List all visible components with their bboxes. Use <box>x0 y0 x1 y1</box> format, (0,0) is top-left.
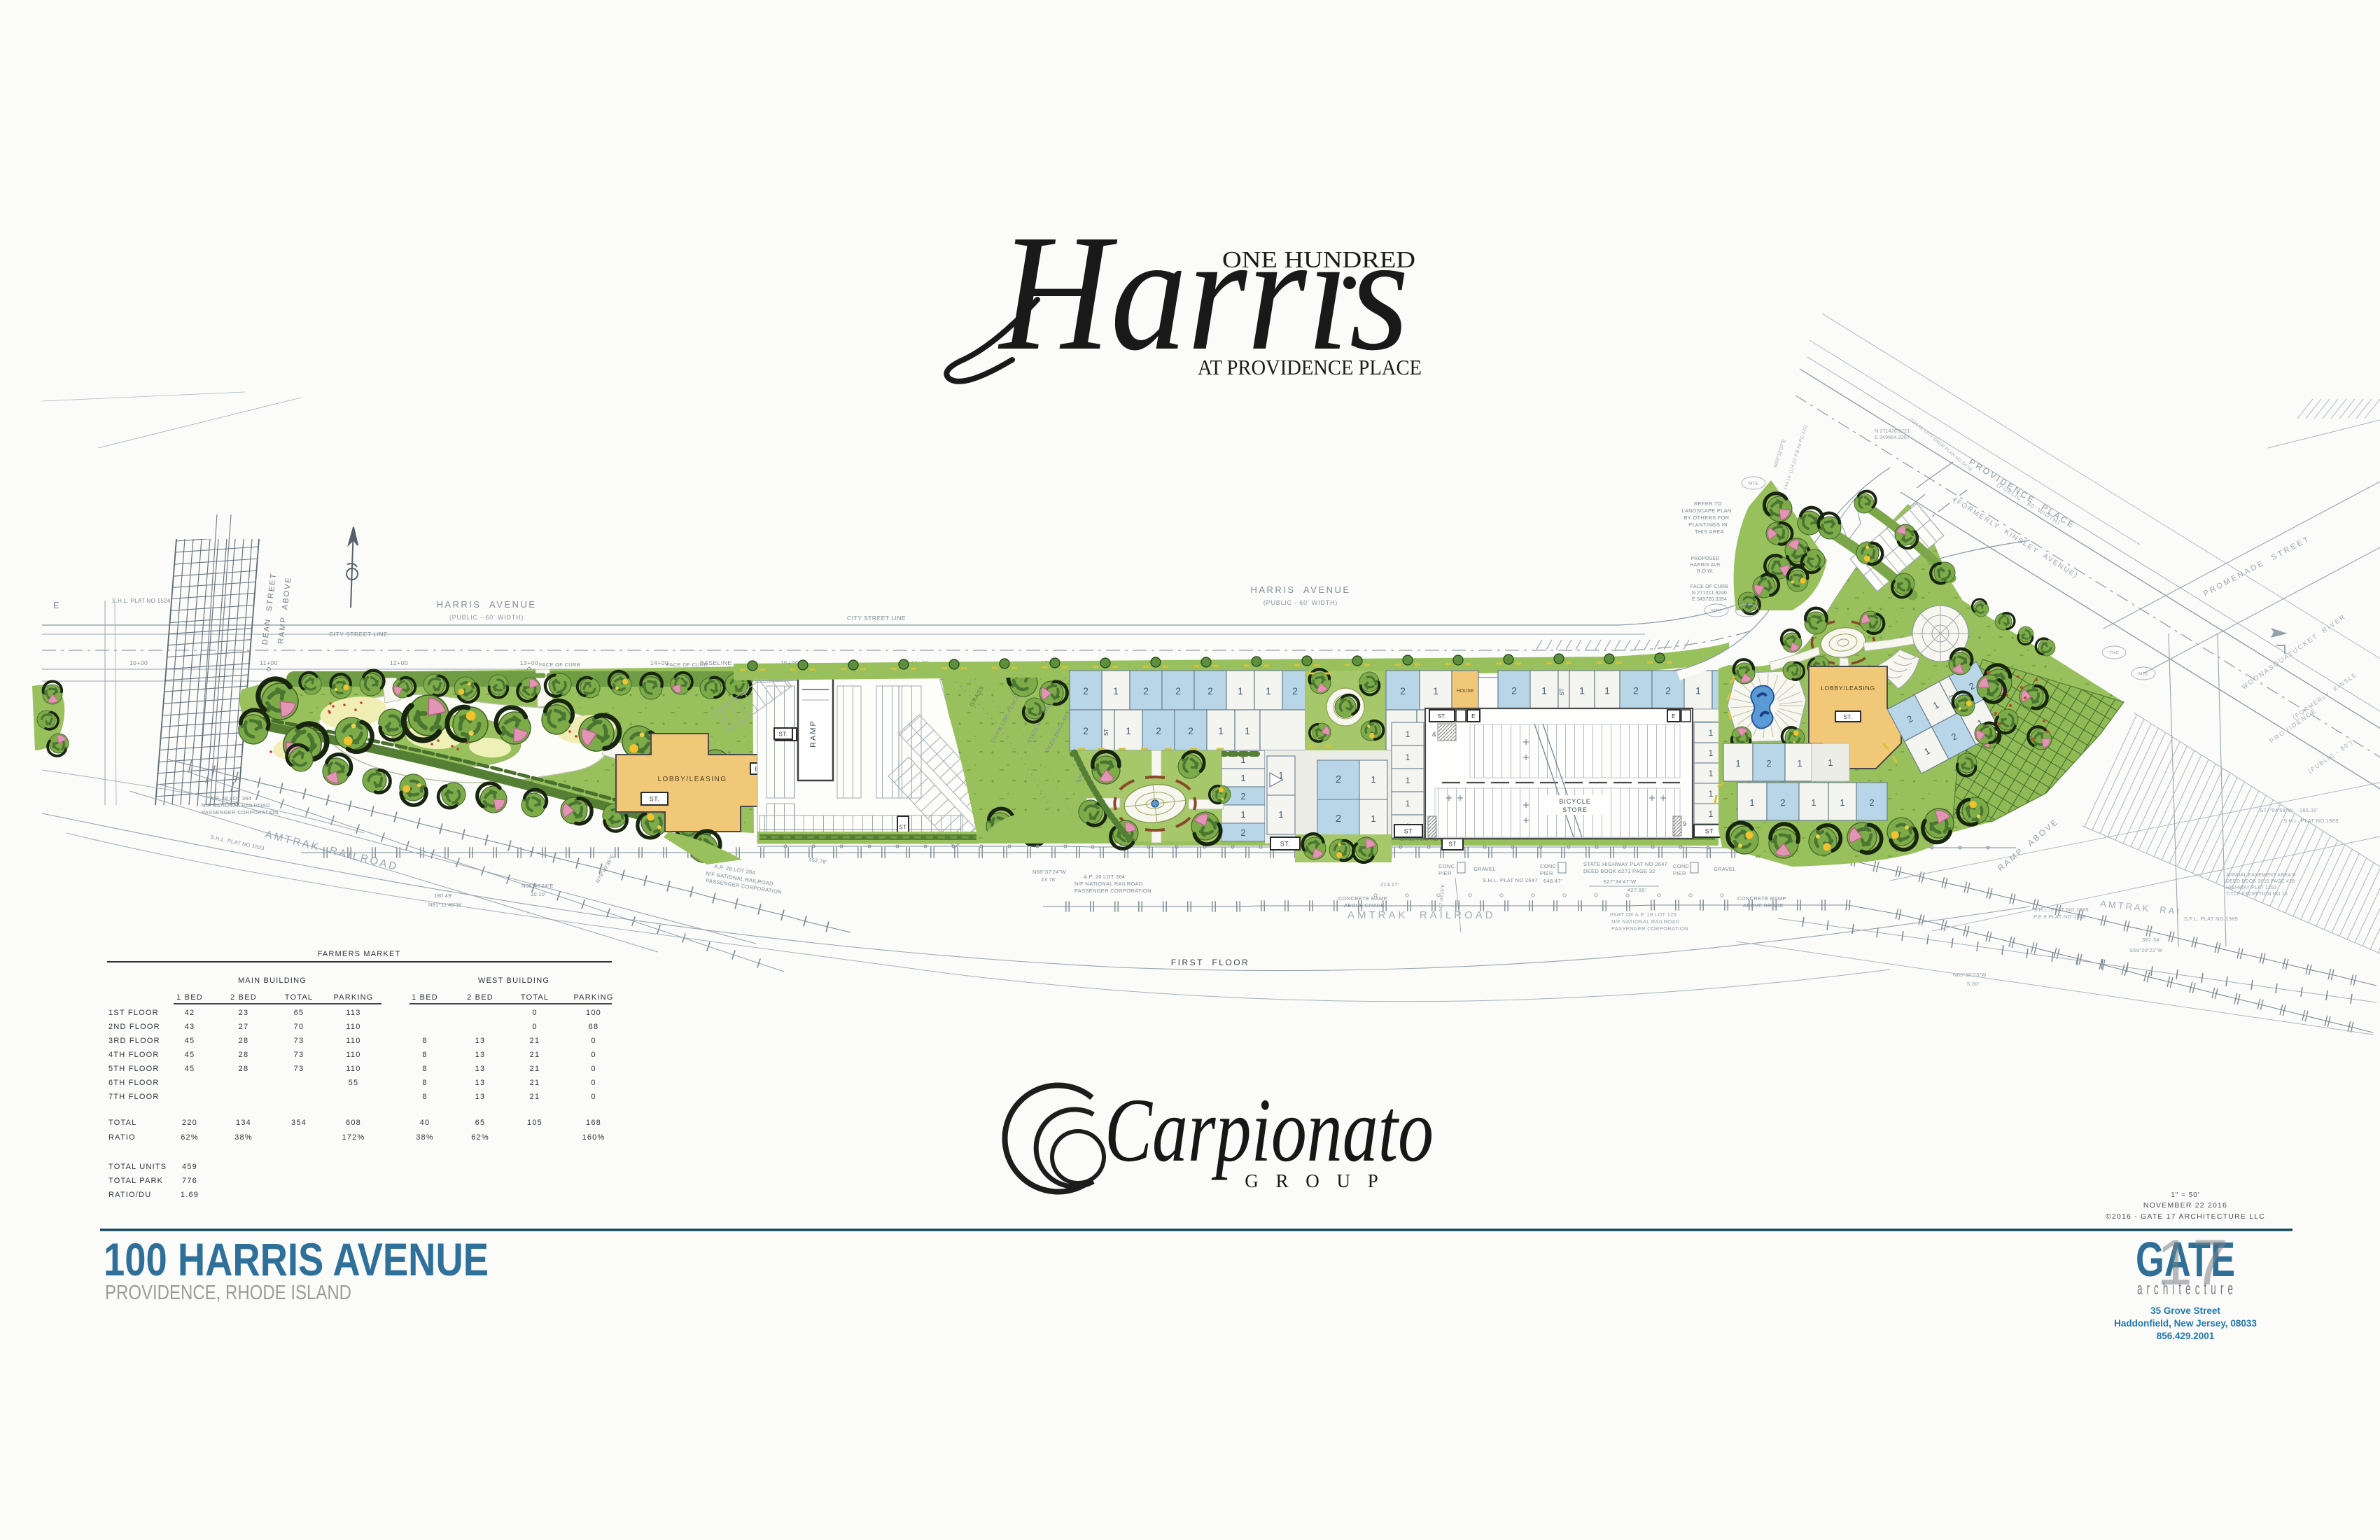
svg-text:2: 2 <box>1766 758 1771 769</box>
svg-text:MTE: MTE <box>1711 609 1722 614</box>
svg-text:STATE HIGHWAY PLAT NO 2647: STATE HIGHWAY PLAT NO 2647 <box>1583 861 1667 867</box>
svg-text:R.O.W.: R.O.W. <box>1697 569 1714 574</box>
svg-text:110: 110 <box>346 1037 360 1045</box>
svg-text:S27°34'47"W: S27°34'47"W <box>1603 878 1637 885</box>
svg-text:2: 2 <box>1633 685 1639 696</box>
svg-text:1 BED: 1 BED <box>412 993 438 1002</box>
svg-text:0: 0 <box>591 1051 596 1059</box>
svg-text:HOUSE: HOUSE <box>1457 689 1474 694</box>
svg-text:1: 1 <box>1709 728 1714 738</box>
svg-text:3RD FLOOR: 3RD FLOOR <box>108 1037 160 1045</box>
svg-text:1: 1 <box>1218 725 1224 736</box>
svg-text:8: 8 <box>422 1065 427 1073</box>
svg-text:LANDSCAPE PLAN: LANDSCAPE PLAN <box>1681 507 1731 514</box>
svg-text:10+00: 10+00 <box>129 659 148 666</box>
svg-text:1: 1 <box>1126 725 1131 736</box>
svg-text:VGC: VGC <box>1742 609 1753 614</box>
svg-text:0: 0 <box>532 1009 537 1017</box>
svg-text:1: 1 <box>1709 789 1714 799</box>
svg-text:8: 8 <box>422 1079 427 1087</box>
svg-text:1: 1 <box>1811 797 1816 808</box>
svg-text:E: E <box>1471 713 1476 720</box>
svg-text:7TH FLOOR: 7TH FLOOR <box>108 1093 160 1101</box>
svg-text:CITY STREET LINE: CITY STREET LINE <box>329 631 388 638</box>
svg-text:TITLE EXCEPTION NO 16: TITLE EXCEPTION NO 16 <box>2226 892 2288 897</box>
svg-text:23: 23 <box>239 1009 249 1017</box>
svg-text:N/F NATIONAL RAILROAD: N/F NATIONAL RAILROAD <box>1074 881 1143 887</box>
svg-text:73: 73 <box>294 1051 304 1059</box>
svg-text:(FORMERLY KINSLE: (FORMERLY KINSLE <box>2291 671 2358 721</box>
svg-text:THC: THC <box>2109 651 2119 656</box>
svg-text:8: 8 <box>422 1037 427 1045</box>
svg-text:PASSENGER CORPORATION: PASSENGER CORPORATION <box>1074 888 1151 894</box>
svg-text:1ST FLOOR: 1ST FLOOR <box>108 1009 159 1017</box>
svg-text:©2016 - GATE 17 ARCHITECTURE L: ©2016 - GATE 17 ARCHITECTURE LLC <box>2106 1212 2265 1221</box>
svg-text:REFER TO: REFER TO <box>1694 500 1722 507</box>
svg-text:65: 65 <box>475 1119 486 1127</box>
svg-text:180.49': 180.49' <box>434 892 453 899</box>
svg-text:55: 55 <box>349 1079 359 1087</box>
svg-text:5TH FLOOR: 5TH FLOOR <box>108 1065 160 1073</box>
svg-text:PARKING: PARKING <box>333 993 373 1002</box>
svg-text:NOVEMBER 22 2016: NOVEMBER 22 2016 <box>2143 1201 2227 1210</box>
svg-text:1: 1 <box>1709 748 1714 758</box>
svg-text:1: 1 <box>1840 797 1844 808</box>
svg-text:2: 2 <box>1511 685 1517 696</box>
svg-text:1: 1 <box>1371 813 1375 824</box>
svg-text:S.H.L. PLAT NO 2647: S.H.L. PLAT NO 2647 <box>1483 877 1538 883</box>
svg-text:13: 13 <box>475 1051 486 1059</box>
svg-text:1: 1 <box>1113 685 1119 696</box>
svg-text:S.H.L. PLAT NO 1524: S.H.L. PLAT NO 1524 <box>112 598 171 604</box>
svg-text:45: 45 <box>185 1037 195 1045</box>
svg-text:HIGHWAY PLAT 1253: HIGHWAY PLAT 1253 <box>2226 885 2276 890</box>
svg-text:1: 1 <box>1695 685 1701 696</box>
svg-text:ST.: ST. <box>650 796 660 803</box>
svg-text:LOBBY/LEASING: LOBBY/LEASING <box>1821 685 1875 692</box>
svg-text:8: 8 <box>422 1093 427 1101</box>
svg-text:CONC: CONC <box>1540 863 1557 869</box>
svg-text:62%: 62% <box>181 1133 199 1142</box>
svg-text:ST: ST <box>1103 729 1109 736</box>
svg-text:ST: ST <box>1448 841 1456 848</box>
svg-text:ST: ST <box>1559 688 1565 695</box>
svg-text:CITY STREET LINE: CITY STREET LINE <box>847 615 906 622</box>
svg-text:42: 42 <box>185 1009 195 1017</box>
svg-text:2: 2 <box>1869 797 1874 808</box>
svg-text:CONC: CONC <box>1673 863 1690 869</box>
svg-text:(PUBLIC - 80'): (PUBLIC - 80') <box>2306 738 2354 775</box>
svg-text:S.H.L. PLAT NO 1989: S.H.L. PLAT NO 1989 <box>2033 906 2089 913</box>
svg-text:1: 1 <box>1797 758 1802 769</box>
svg-text:TOTAL UNITS: TOTAL UNITS <box>108 1163 167 1171</box>
svg-text:(144.01 CITY ENGR PLAN NO 5474: (144.01 CITY ENGR PLAN NO 5474) <box>1909 417 1973 472</box>
svg-text:2 BED: 2 BED <box>467 993 493 1002</box>
svg-text:2: 2 <box>1083 685 1088 696</box>
svg-text:105: 105 <box>527 1119 542 1127</box>
svg-text:PASSENGER CORPORATION: PASSENGER CORPORATION <box>202 809 279 815</box>
svg-text:1: 1 <box>1278 809 1283 820</box>
svg-text:ST.: ST. <box>1280 841 1291 848</box>
svg-text:10.10': 10.10' <box>531 891 546 897</box>
svg-text:GRAVEL: GRAVEL <box>1714 866 1736 872</box>
svg-text:648.47': 648.47' <box>1543 878 1562 884</box>
svg-text:1" = 50': 1" = 50' <box>2171 1191 2200 1199</box>
svg-text:a r c h i t e c t u r e: a r c h i t e c t u r e <box>2137 1280 2234 1298</box>
svg-text:21: 21 <box>530 1079 540 1087</box>
svg-text:(FORMERLY KINSLEY AVENUE): (FORMERLY KINSLEY AVENUE) <box>1952 496 2079 580</box>
svg-text:2: 2 <box>1665 685 1671 696</box>
svg-text:73: 73 <box>294 1065 304 1073</box>
svg-text:21: 21 <box>530 1037 540 1045</box>
svg-text:35 Grove Street: 35 Grove Street <box>2150 1305 2220 1316</box>
svg-text:TOTAL PARK: TOTAL PARK <box>108 1177 163 1185</box>
svg-text:2: 2 <box>1780 797 1785 808</box>
svg-text:TOTAL: TOTAL <box>285 993 313 1002</box>
svg-text:(PUBLIC - 60' WIDTH): (PUBLIC - 60' WIDTH) <box>449 614 524 621</box>
svg-text:N 271211.9240: N 271211.9240 <box>1692 591 1727 596</box>
svg-text:LOBBY/LEASING: LOBBY/LEASING <box>658 776 727 783</box>
svg-text:27: 27 <box>239 1023 249 1031</box>
svg-text:220: 220 <box>182 1119 197 1127</box>
svg-text:776: 776 <box>182 1177 197 1185</box>
svg-text:2: 2 <box>1188 725 1193 736</box>
svg-text:N79°40'36"E: N79°40'36"E <box>594 853 616 884</box>
svg-text:RATIO/DU: RATIO/DU <box>108 1191 151 1199</box>
svg-text:1: 1 <box>1406 752 1410 762</box>
svg-text:9: 9 <box>1683 820 1686 827</box>
svg-text:AMTRAK RAI: AMTRAK RAI <box>2100 898 2182 917</box>
svg-text:452.78': 452.78' <box>808 856 828 865</box>
svg-text:PASSENGER CORPORATION: PASSENGER CORPORATION <box>1611 925 1688 932</box>
svg-text:213.17': 213.17' <box>1380 881 1399 888</box>
svg-text:1: 1 <box>1604 685 1610 696</box>
svg-text:13+00: 13+00 <box>520 659 538 666</box>
svg-text:G R O U P: G R O U P <box>1245 1170 1385 1191</box>
svg-text:2ND FLOOR: 2ND FLOOR <box>108 1023 160 1031</box>
svg-text:ST: ST <box>1404 828 1413 835</box>
svg-text:MTE: MTE <box>1749 482 1759 486</box>
svg-text:HARRIS AVENUE: HARRIS AVENUE <box>1250 584 1350 595</box>
svg-text:PROVIDENCE: PROVIDENCE <box>2268 707 2318 745</box>
svg-text:S.H.L. PLAT NO 1989: S.H.L. PLAT NO 1989 <box>2283 818 2339 824</box>
svg-text:62%: 62% <box>471 1133 489 1142</box>
svg-text:856.429.2001: 856.429.2001 <box>2157 1331 2215 1341</box>
svg-text:ST.: ST. <box>778 731 787 738</box>
svg-text:ST: ST <box>1705 828 1714 835</box>
svg-text:608: 608 <box>346 1119 361 1127</box>
svg-text:43: 43 <box>185 1023 195 1031</box>
svg-text:110: 110 <box>346 1065 360 1073</box>
svg-text:45: 45 <box>185 1051 195 1059</box>
svg-text:11+00: 11+00 <box>260 659 278 666</box>
svg-text:38%: 38% <box>416 1133 434 1142</box>
svg-text:70: 70 <box>294 1023 304 1031</box>
svg-text:N07°06'25"E: N07°06'25"E <box>1438 883 1445 911</box>
svg-text:40: 40 <box>420 1119 430 1127</box>
svg-text:134: 134 <box>236 1119 251 1127</box>
svg-text:100: 100 <box>586 1009 601 1017</box>
svg-text:N/F NATIONAL RAILROAD: N/F NATIONAL RAILROAD <box>1611 918 1680 925</box>
svg-text:FACE OF CURB: FACE OF CURB <box>666 661 708 668</box>
svg-text:PLANTINGS IN: PLANTINGS IN <box>1688 521 1728 528</box>
svg-text:5.00': 5.00' <box>1967 981 1980 987</box>
svg-text:28: 28 <box>239 1051 249 1059</box>
svg-text:PIER: PIER <box>1673 870 1686 876</box>
svg-text:1: 1 <box>1371 774 1375 785</box>
svg-text:Carpionato: Carpionato <box>1105 1080 1434 1181</box>
svg-text:6TH FLOOR: 6TH FLOOR <box>108 1079 160 1087</box>
svg-text:DEED BOOK 6271 PAGE 32: DEED BOOK 6271 PAGE 32 <box>1583 868 1655 874</box>
svg-text:ST: ST <box>899 825 906 831</box>
svg-text:168: 168 <box>586 1119 601 1127</box>
svg-text:WEST BUILDING: WEST BUILDING <box>478 976 549 985</box>
svg-text:&: & <box>1432 731 1436 738</box>
svg-text:N05°30'23"W: N05°30'23"W <box>1953 972 1987 978</box>
svg-text:RAMP ABOVE: RAMP ABOVE <box>1996 816 2061 873</box>
svg-text:FACE OF CURB: FACE OF CURB <box>539 661 580 668</box>
svg-text:RATIO: RATIO <box>108 1133 136 1142</box>
svg-text:ST.: ST. <box>1437 713 1446 720</box>
svg-text:N 271426.0721: N 271426.0721 <box>1875 429 1910 434</box>
svg-text:2: 2 <box>1292 685 1298 696</box>
svg-text:2: 2 <box>1240 827 1245 838</box>
svg-text:2: 2 <box>1240 791 1245 801</box>
svg-text:110: 110 <box>346 1051 360 1059</box>
svg-text:1: 1 <box>1749 797 1754 808</box>
svg-text:2 BED: 2 BED <box>230 993 257 1002</box>
svg-text:2: 2 <box>1156 725 1161 736</box>
svg-text:DEED BOOK 3016 PAGE 418: DEED BOOK 3016 PAGE 418 <box>2226 879 2295 884</box>
svg-text:AMTRAK RAILROAD: AMTRAK RAILROAD <box>264 828 400 873</box>
svg-text:ANNUAL EASEMENT AREA B: ANNUAL EASEMENT AREA B <box>2226 873 2296 878</box>
svg-text:38%: 38% <box>234 1133 253 1142</box>
svg-text:1: 1 <box>1735 758 1740 769</box>
svg-text:113: 113 <box>346 1009 360 1017</box>
svg-text:1: 1 <box>1240 773 1245 783</box>
svg-text:2: 2 <box>1175 685 1181 696</box>
svg-text:1: 1 <box>1828 757 1833 768</box>
svg-text:AT PROVIDENCE PLACE: AT PROVIDENCE PLACE <box>1198 355 1422 379</box>
svg-text:1: 1 <box>1541 685 1547 696</box>
svg-text:459: 459 <box>182 1163 197 1171</box>
svg-text:1 BED: 1 BED <box>176 993 203 1002</box>
svg-text:CONCRETE RAMP: CONCRETE RAMP <box>1737 895 1786 902</box>
svg-text:PARKING: PARKING <box>573 993 613 1002</box>
svg-text:1: 1 <box>1579 685 1585 696</box>
svg-text:1: 1 <box>1406 776 1410 785</box>
svg-text:(PUBLIC - 80' WIDTH): (PUBLIC - 80' WIDTH) <box>1996 481 2062 526</box>
svg-text:13: 13 <box>475 1037 486 1045</box>
svg-text:MTE: MTE <box>2138 672 2149 677</box>
svg-text:12+00: 12+00 <box>390 659 408 666</box>
svg-text:68: 68 <box>589 1023 599 1031</box>
svg-text:ABOVE GRADE: ABOVE GRADE <box>1743 902 1784 909</box>
svg-text:1: 1 <box>1238 685 1243 696</box>
svg-text:PIER: PIER <box>1540 870 1553 876</box>
svg-text:110: 110 <box>346 1023 360 1031</box>
svg-text:PART OF A.P. 19 LOT 125: PART OF A.P. 19 LOT 125 <box>1610 911 1676 918</box>
svg-text:N58°37'24"W: N58°37'24"W <box>1032 869 1067 875</box>
svg-text:21: 21 <box>530 1051 540 1059</box>
svg-text:N05°46'24"E: N05°46'24"E <box>521 883 554 889</box>
svg-text:P.E.9 PLAT NO 1989: P.E.9 PLAT NO 1989 <box>2033 913 2086 920</box>
svg-text:172%: 172% <box>342 1133 365 1142</box>
svg-text:1: 1 <box>1406 729 1410 739</box>
svg-text:MAIN BUILDING: MAIN BUILDING <box>238 976 307 985</box>
svg-text:RAMP: RAMP <box>809 720 818 748</box>
svg-text:387.34': 387.34' <box>2142 937 2161 943</box>
svg-text:PROVIDENCE, RHODE ISLAND: PROVIDENCE, RHODE ISLAND <box>105 1282 351 1304</box>
svg-text:S.F.L. PLAT NO 1989: S.F.L. PLAT NO 1989 <box>2184 916 2238 922</box>
svg-text:AMTRAK RAILROAD: AMTRAK RAILROAD <box>1347 909 1496 921</box>
svg-text:CONC: CONC <box>1438 863 1455 869</box>
svg-text:PROMENADE STREET: PROMENADE STREET <box>2202 535 2312 598</box>
svg-text:ST.: ST. <box>1843 714 1852 720</box>
svg-text:2: 2 <box>1400 685 1406 696</box>
svg-text:427.50': 427.50' <box>1627 887 1646 893</box>
svg-text:BICYCLE: BICYCLE <box>1559 798 1591 805</box>
svg-text:73: 73 <box>294 1037 304 1045</box>
svg-text:2: 2 <box>1336 813 1341 825</box>
svg-text:4TH FLOOR: 4TH FLOOR <box>108 1051 160 1059</box>
svg-text:1: 1 <box>1709 809 1714 819</box>
svg-text:FIRST FLOOR: FIRST FLOOR <box>1171 958 1249 967</box>
svg-text:2: 2 <box>1336 773 1341 785</box>
svg-text:65: 65 <box>294 1009 304 1017</box>
svg-text:E 349664.2267: E 349664.2267 <box>1875 435 1910 440</box>
svg-text:2: 2 <box>1143 685 1149 696</box>
svg-text:(PUBLIC - 60' WIDTH): (PUBLIC - 60' WIDTH) <box>1263 599 1338 606</box>
svg-text:S68°28'22"W: S68°28'22"W <box>2129 947 2163 953</box>
svg-text:21: 21 <box>530 1093 540 1101</box>
svg-text:0: 0 <box>532 1023 537 1031</box>
svg-text:E: E <box>1672 713 1676 720</box>
svg-text:Haddonfield, New Jersey, 08033: Haddonfield, New Jersey, 08033 <box>2114 1318 2257 1329</box>
svg-text:13: 13 <box>475 1093 486 1101</box>
svg-text:2: 2 <box>1083 725 1088 736</box>
svg-text:1: 1 <box>1406 799 1410 808</box>
svg-text:1: 1 <box>1245 725 1250 736</box>
svg-text:A.P. 28 LOT 364: A.P. 28 LOT 364 <box>210 795 251 801</box>
svg-text:45: 45 <box>185 1065 195 1073</box>
svg-text:0: 0 <box>591 1079 596 1087</box>
svg-text:HARRIS AVE: HARRIS AVE <box>1690 563 1721 568</box>
svg-text:TOTAL: TOTAL <box>521 993 549 1002</box>
svg-text:1: 1 <box>1709 769 1714 778</box>
svg-text:S77°04'58"W 266.32': S77°04'58"W 266.32' <box>2260 807 2318 813</box>
svg-text:PIER: PIER <box>1438 870 1452 876</box>
svg-text:160%: 160% <box>582 1133 605 1142</box>
svg-text:N/F NATIONAL RAILROAD: N/F NATIONAL RAILROAD <box>202 802 270 808</box>
svg-text:28: 28 <box>239 1065 249 1073</box>
svg-text:144.14' (114.21 P.B 59 PG 232): 144.14' (114.21 P.B 59 PG 232) <box>1783 424 1809 490</box>
svg-text:21: 21 <box>530 1065 540 1073</box>
svg-text:N03°32'07"E: N03°32'07"E <box>1772 438 1787 468</box>
svg-text:E 349720.3394: E 349720.3394 <box>1692 597 1727 602</box>
svg-text:THIS AREA: THIS AREA <box>1695 528 1724 535</box>
svg-text:0: 0 <box>591 1093 596 1101</box>
svg-text:1: 1 <box>1240 809 1245 820</box>
svg-text:A.P. 26 LOT 364: A.P. 26 LOT 364 <box>1084 874 1125 880</box>
svg-text:STORE: STORE <box>1562 806 1588 813</box>
svg-text:23.76': 23.76' <box>1041 876 1056 883</box>
svg-text:TOTAL: TOTAL <box>108 1119 136 1127</box>
svg-text:8: 8 <box>422 1051 427 1059</box>
svg-text:PROPOSED: PROPOSED <box>1690 556 1719 561</box>
svg-text:FARMERS MARKET: FARMERS MARKET <box>318 950 401 958</box>
svg-text:2: 2 <box>1207 685 1213 696</box>
svg-text:CONCRETE RAMP: CONCRETE RAMP <box>1338 895 1387 902</box>
svg-text:354: 354 <box>291 1119 307 1127</box>
svg-text:N81°11'46"W: N81°11'46"W <box>428 902 462 908</box>
svg-text:GRAVEL: GRAVEL <box>1473 866 1496 872</box>
svg-text:1.69: 1.69 <box>181 1191 199 1199</box>
svg-text:ABOVE GRADE: ABOVE GRADE <box>1344 902 1385 909</box>
svg-text:1: 1 <box>1433 685 1438 696</box>
svg-text:13: 13 <box>475 1079 486 1087</box>
svg-text:0: 0 <box>591 1037 596 1045</box>
svg-text:E: E <box>53 600 59 610</box>
svg-text:1: 1 <box>1266 685 1271 696</box>
svg-text:100 HARRIS AVENUE: 100 HARRIS AVENUE <box>104 1233 489 1285</box>
svg-text:HARRIS AVENUE: HARRIS AVENUE <box>436 599 536 610</box>
svg-text:28: 28 <box>239 1037 249 1045</box>
svg-text:13: 13 <box>475 1065 486 1073</box>
svg-text:0: 0 <box>591 1065 596 1073</box>
svg-text:BY OTHERS FOR: BY OTHERS FOR <box>1683 514 1729 521</box>
svg-text:FACE OF CURB: FACE OF CURB <box>1690 584 1728 589</box>
